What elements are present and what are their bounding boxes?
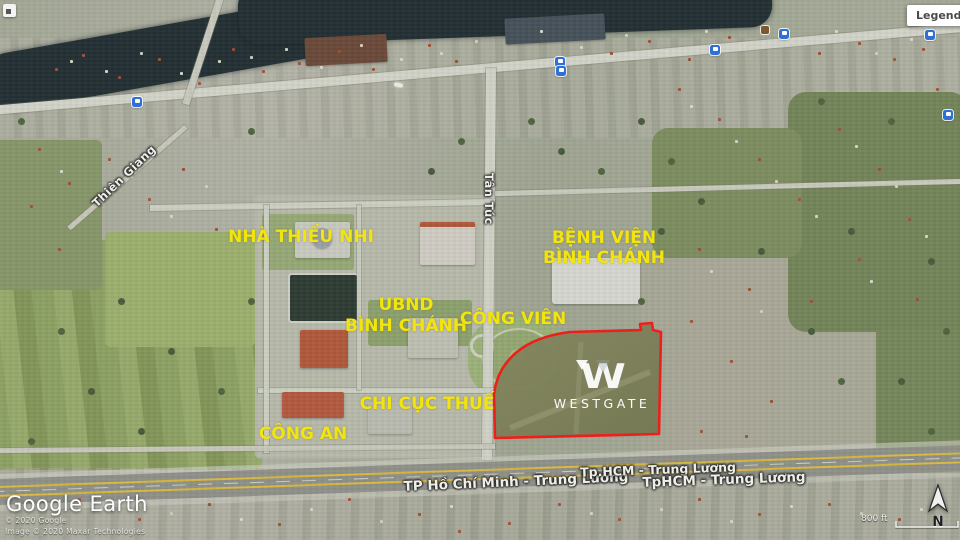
transit-stop-icon[interactable]	[556, 66, 566, 76]
westgate-wordmark: WESTGATE	[554, 396, 651, 411]
transit-stop-icon[interactable]	[132, 97, 142, 107]
transit-stop-icon[interactable]	[710, 45, 720, 55]
placemark-cong-an[interactable]: CÔNG AN	[259, 424, 347, 444]
scale-bar-label: 800 ft	[861, 514, 888, 524]
transit-stop-icon[interactable]	[943, 110, 953, 120]
transit-stop-icon[interactable]	[779, 29, 789, 39]
google-earth-viewport: W WESTGATE Thiên Giang Tân Túc TP Hồ Chí…	[0, 0, 960, 540]
google-earth-watermark: Google Earth	[6, 492, 148, 516]
poi-icon[interactable]	[761, 26, 769, 34]
placemark-chi-cuc-thue[interactable]: CHI CỤC THUẾ	[360, 394, 495, 414]
street-label-tan-tuc: Tân Túc	[482, 173, 496, 225]
placemark-line: BỆNH VIỆN	[552, 228, 656, 248]
placemark-line: UBND	[378, 295, 433, 315]
placemark-line: BÌNH CHÁNH	[345, 316, 467, 336]
legend-button[interactable]: Legend	[907, 5, 960, 26]
copyright-text: Image © 2020 Maxar Technologies	[5, 527, 145, 536]
placemark-line: BÌNH CHÁNH	[543, 248, 665, 268]
copyright-text: © 2020 Google	[5, 516, 67, 525]
placemark-benh-vien-binh-chanh[interactable]: BỆNH VIỆN BÌNH CHÁNH	[543, 228, 665, 268]
photo-overlay-icon[interactable]	[3, 4, 16, 17]
north-arrow-icon[interactable]: N	[925, 483, 951, 529]
placemark-ubnd-binh-chanh[interactable]: UBND BÌNH CHÁNH	[345, 295, 467, 337]
placemark-nha-thieu-nhi[interactable]: NHÀ THIẾU NHI	[228, 227, 374, 247]
north-letter: N	[932, 514, 944, 529]
placemark-cong-vien[interactable]: CÔNG VIÊN	[460, 309, 566, 329]
westgate-overlay: W WESTGATE	[0, 0, 960, 540]
transit-stop-icon[interactable]	[925, 30, 935, 40]
